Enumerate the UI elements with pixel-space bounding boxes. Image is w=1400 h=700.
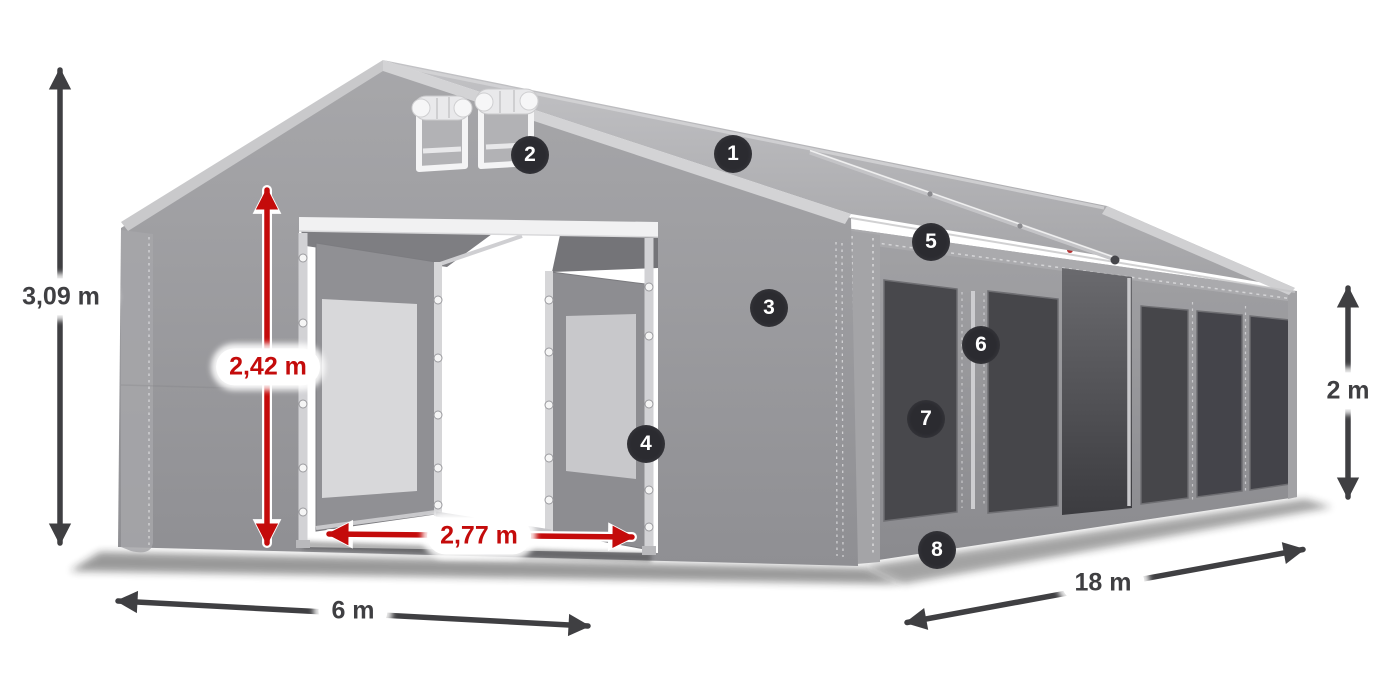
callout-badge-8: 8 [918, 531, 956, 569]
door-window [566, 314, 636, 479]
side-window [1250, 316, 1290, 490]
side-door-opening [1062, 268, 1132, 515]
side-window [988, 291, 1058, 513]
door-window [322, 299, 417, 498]
callout-badge-7: 7 [907, 400, 945, 438]
callout-badge-1: 1 [714, 135, 752, 173]
label-length: 18 m [1062, 564, 1145, 601]
side-window [1197, 311, 1242, 497]
rear-corner-pillar [1288, 290, 1297, 499]
callout-badge-2: 2 [511, 136, 549, 174]
entrance-opening [296, 217, 658, 562]
callout-badge-4: 4 [627, 425, 665, 463]
side-window [1141, 306, 1188, 504]
callout-badge-6: 6 [962, 326, 1000, 364]
rafter-cap [1111, 256, 1120, 265]
callout-badge-5: 5 [912, 223, 950, 261]
label-entrance-height: 2,42 m [216, 348, 320, 385]
label-side-height: 2 m [1313, 372, 1382, 409]
front-left-pillar [121, 230, 153, 552]
tent-illustration [0, 0, 1400, 700]
roof-vent [412, 96, 472, 169]
label-total-height: 3,09 m [9, 278, 113, 315]
door-canopy-right [552, 235, 658, 272]
label-width: 6 m [318, 592, 387, 629]
door-leaf-right [545, 271, 645, 549]
label-entrance-width: 2,77 m [427, 517, 531, 554]
callout-badge-3: 3 [750, 289, 788, 327]
tent-dimension-diagram: 3,09 m 2,42 m 2,77 m 6 m 18 m 2 m 1 2 3 … [0, 0, 1400, 700]
door-leaf-left [316, 243, 442, 531]
